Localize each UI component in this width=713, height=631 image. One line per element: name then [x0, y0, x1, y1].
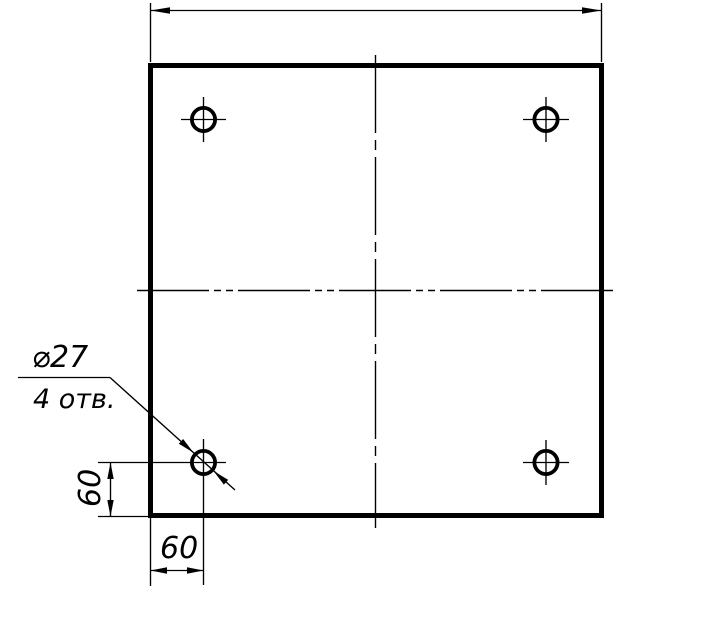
arrowhead-up [107, 463, 113, 480]
vertical-offset-label: 60 [73, 469, 108, 507]
hole-bottom-right [523, 440, 569, 485]
hole-offset-vertical-dimension: 60 [73, 463, 149, 517]
arrowhead-right [582, 7, 602, 13]
diameter-label: ⌀27 [32, 340, 88, 375]
arrowhead-left [151, 567, 168, 573]
technical-drawing: 60 60 ⌀27 4 отв. [0, 0, 713, 631]
drawing-canvas: 60 60 ⌀27 4 отв. [0, 0, 713, 631]
overall-width-dimension [151, 3, 602, 62]
hole-top-left [181, 97, 226, 142]
arrowhead-down [107, 500, 113, 517]
hole-callout: ⌀27 4 отв. [18, 340, 235, 490]
horizontal-offset-label: 60 [160, 531, 198, 566]
hole-top-right [523, 97, 569, 142]
arrowhead-left [151, 7, 171, 13]
arrowhead-right [187, 567, 204, 573]
hole-count-label: 4 отв. [33, 384, 116, 415]
hole-offset-horizontal-dimension: 60 [151, 518, 204, 586]
